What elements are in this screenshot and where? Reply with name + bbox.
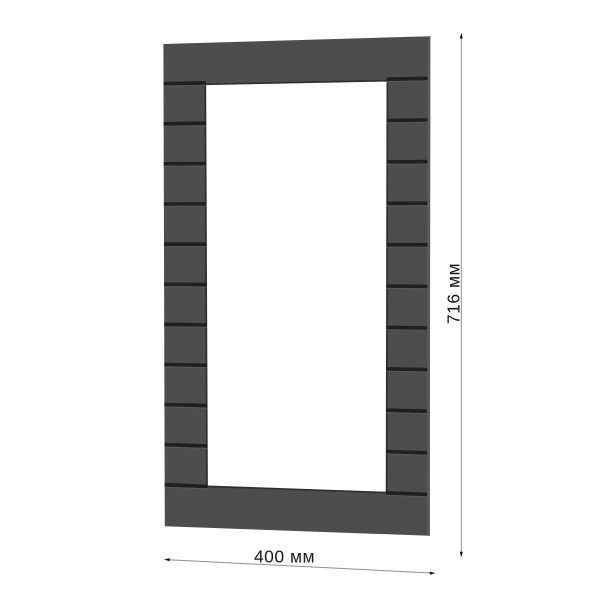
svg-text:400 мм: 400 мм xyxy=(254,546,315,566)
svg-text:716 мм: 716 мм xyxy=(444,263,464,324)
